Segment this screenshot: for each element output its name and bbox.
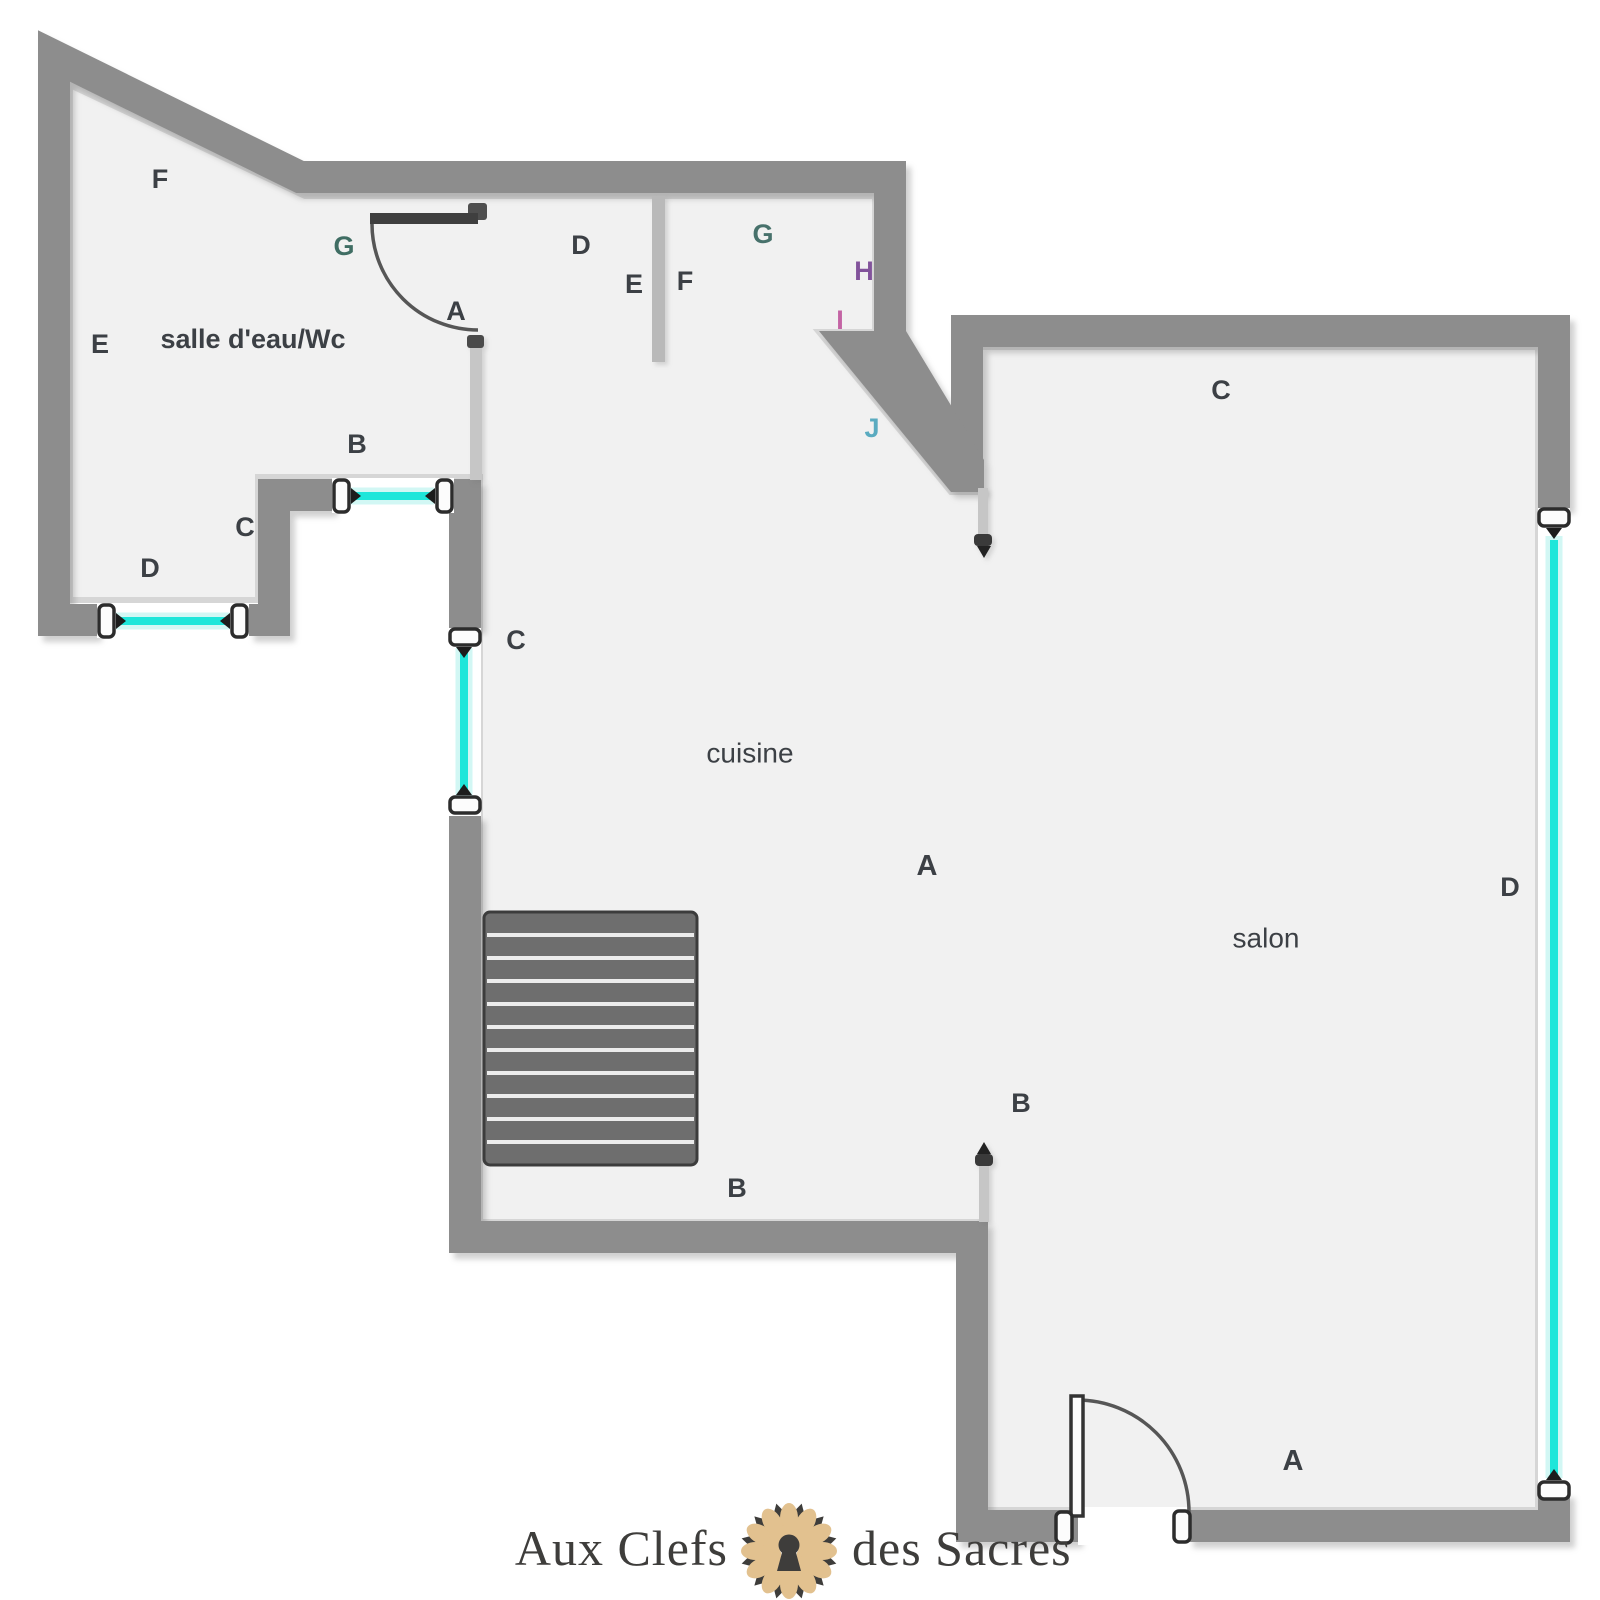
wall-marker-i-12: I — [836, 305, 844, 335]
floor-plan-page: FEGABCDDEFGHIJCABBCDA salle d'eau/Wccuis… — [0, 0, 1600, 1600]
wall-salle-step — [249, 495, 333, 620]
door-strike-wall — [470, 340, 482, 480]
wall-marker-b-17: B — [1011, 1088, 1031, 1118]
window-d-salon-icon — [1538, 508, 1570, 1499]
wall-marker-g-10: G — [752, 219, 773, 249]
opening-cap-lower — [975, 1154, 993, 1166]
window-d-salle-icon — [97, 603, 249, 638]
watermark-left: Aux Clefs — [515, 1520, 728, 1576]
wall-marker-e-1: E — [91, 329, 109, 359]
window-c-cuisine-icon — [448, 628, 481, 816]
wall-marker-d-7: D — [571, 230, 591, 260]
wall-marker-b-4: B — [347, 429, 367, 459]
partition-wall-corridor — [652, 196, 665, 362]
room-label-salon: salon — [1233, 923, 1300, 954]
floor-area — [70, 85, 1538, 1510]
wall-b-right — [450, 495, 465, 628]
room-label-cuisine: cuisine — [706, 738, 793, 769]
wall-marker-a-3: A — [446, 296, 466, 326]
wall-marker-a-15: A — [917, 850, 938, 882]
watermark-right: des Sacres — [852, 1520, 1072, 1576]
staircase-icon — [484, 912, 697, 1165]
brand-logo-icon — [739, 1501, 838, 1600]
wall-marker-j-13: J — [864, 413, 879, 443]
wall-marker-f-0: F — [152, 164, 169, 194]
wall-marker-h-11: H — [854, 256, 874, 286]
wall-marker-f-9: F — [677, 266, 694, 296]
wall-marker-c-18: C — [1211, 375, 1231, 405]
wall-marker-c-14: C — [506, 625, 526, 655]
opening-cap-upper — [974, 534, 992, 546]
wall-marker-e-8: E — [625, 269, 643, 299]
wall-marker-g-2: G — [333, 231, 354, 261]
opening-stub-upper — [978, 488, 988, 538]
door-strike-cap — [467, 335, 484, 348]
wall-marker-d-19: D — [1500, 872, 1520, 902]
room-label-salle-deau: salle d'eau/Wc — [161, 324, 346, 354]
window-b-salle-icon — [332, 478, 454, 513]
wall-marker-b-16: B — [727, 1173, 747, 1203]
wall-marker-c-5: C — [235, 512, 255, 542]
floor-plan-canvas: FEGABCDDEFGHIJCABBCDA salle d'eau/Wccuis… — [0, 0, 1600, 1600]
wall-marker-d-6: D — [140, 553, 160, 583]
opening-stub-lower — [979, 1166, 989, 1222]
wall-marker-a-20: A — [1283, 1445, 1304, 1477]
